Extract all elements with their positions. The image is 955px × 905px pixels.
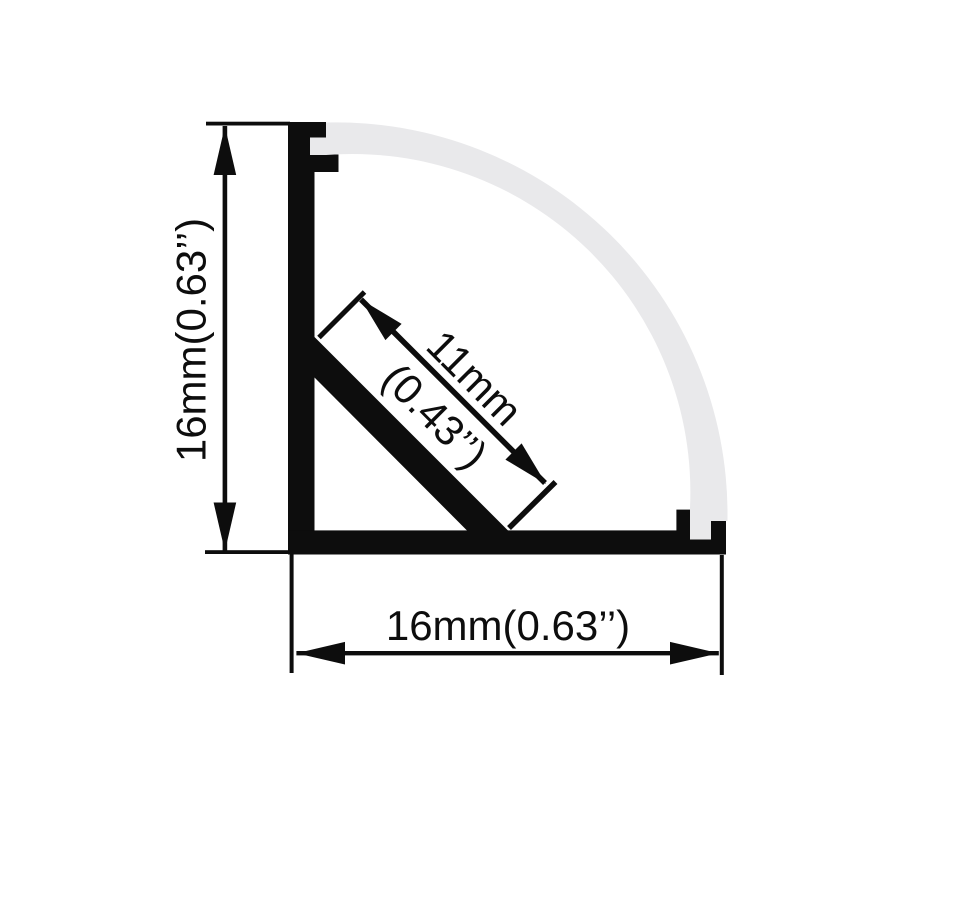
svg-text:16mm(0.63’’): 16mm(0.63’’) (168, 218, 215, 462)
svg-text:16mm(0.63’’): 16mm(0.63’’) (386, 602, 630, 649)
